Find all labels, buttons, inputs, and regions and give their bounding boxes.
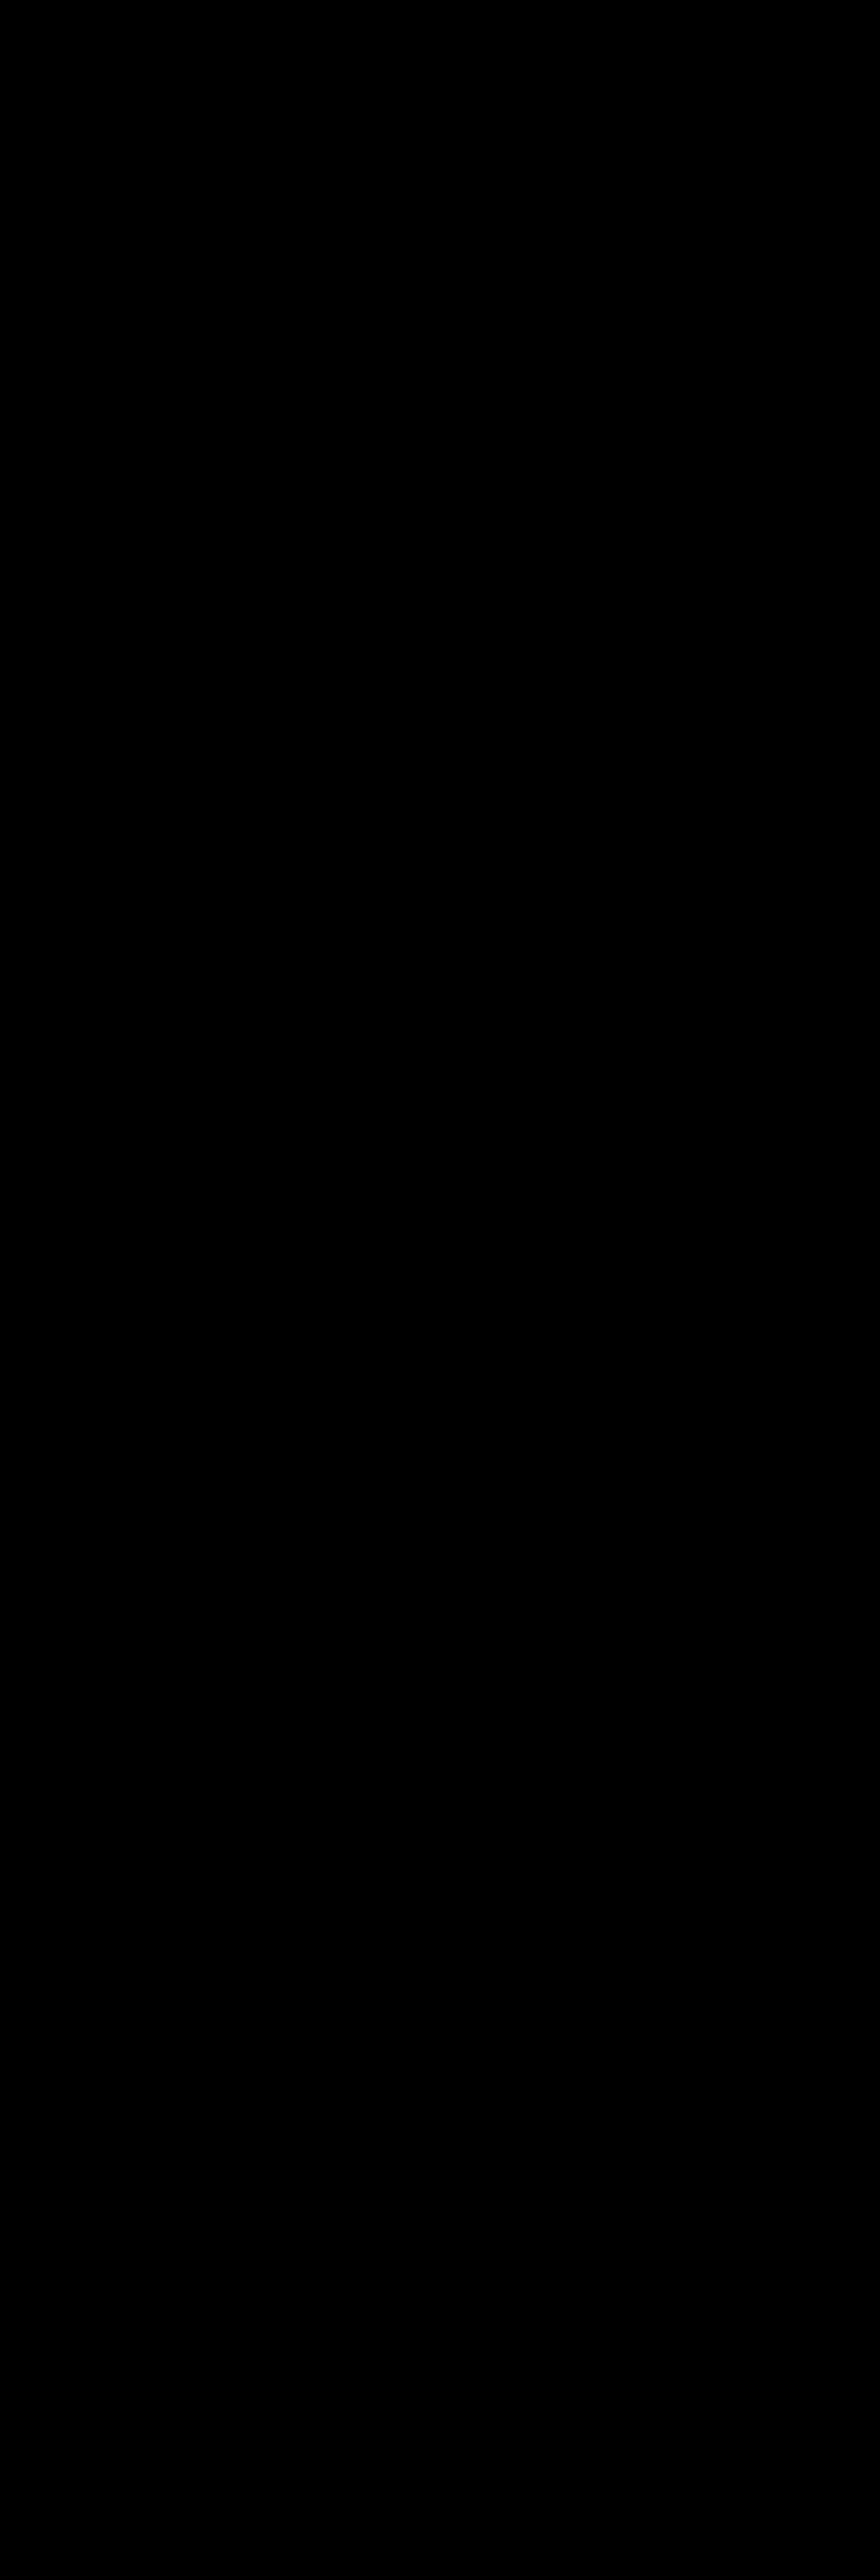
tileset-sheet [0, 0, 868, 2576]
